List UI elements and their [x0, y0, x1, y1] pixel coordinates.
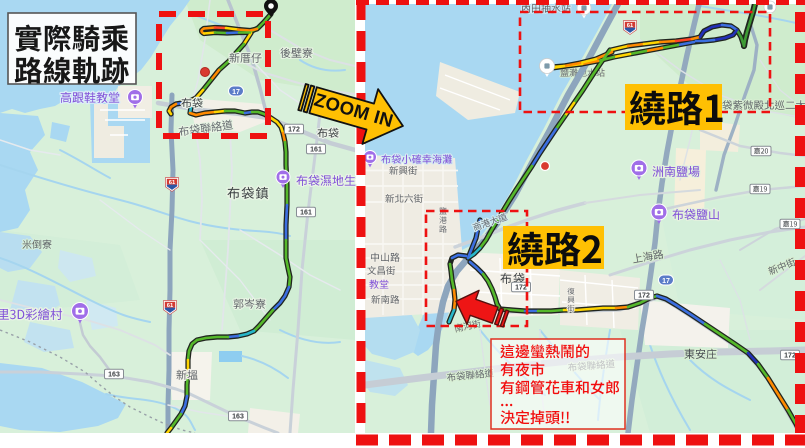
- svg-text:172: 172: [638, 293, 650, 300]
- svg-text:172: 172: [515, 285, 527, 292]
- svg-text:172: 172: [784, 353, 796, 360]
- svg-text:61: 61: [167, 303, 174, 309]
- svg-text:163: 163: [232, 414, 244, 421]
- svg-text:163: 163: [108, 372, 120, 379]
- svg-text:172: 172: [288, 127, 300, 134]
- svg-text:61: 61: [169, 180, 176, 186]
- svg-text:61: 61: [627, 23, 634, 29]
- svg-text:17: 17: [662, 278, 670, 285]
- svg-text:161: 161: [300, 210, 312, 217]
- svg-text:17: 17: [232, 89, 240, 96]
- svg-text:161: 161: [310, 147, 322, 154]
